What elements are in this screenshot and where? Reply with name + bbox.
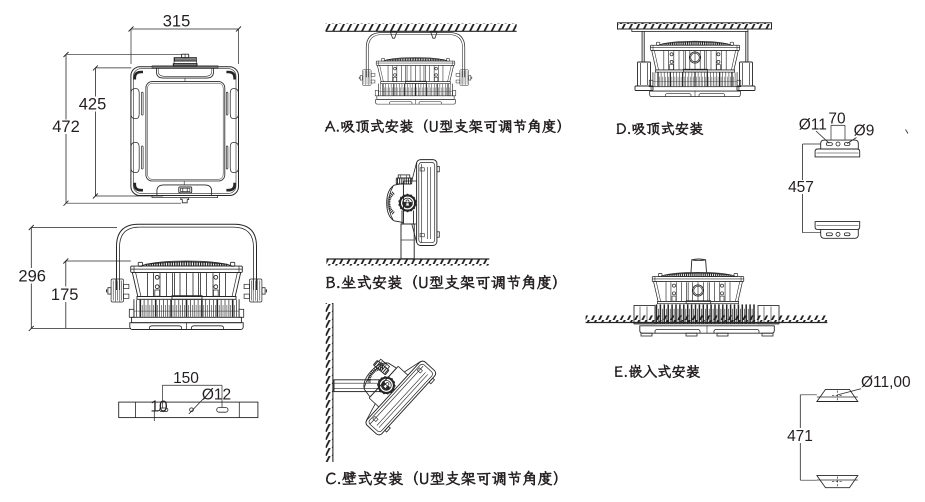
- svg-text:296: 296: [18, 268, 46, 286]
- svg-text:425: 425: [79, 96, 107, 114]
- svg-text:315: 315: [163, 13, 191, 31]
- svg-text:457: 457: [788, 179, 814, 196]
- svg-text:Ø11,00: Ø11,00: [861, 374, 911, 391]
- svg-text:Ø9: Ø9: [854, 123, 875, 140]
- svg-text:175: 175: [51, 286, 79, 304]
- svg-text:472: 472: [52, 118, 80, 136]
- svg-text:10: 10: [150, 399, 168, 416]
- svg-text:Ø12: Ø12: [202, 387, 231, 404]
- svg-text:150: 150: [173, 370, 199, 387]
- svg-text:471: 471: [787, 428, 813, 445]
- svg-text:Ø11: Ø11: [799, 117, 827, 134]
